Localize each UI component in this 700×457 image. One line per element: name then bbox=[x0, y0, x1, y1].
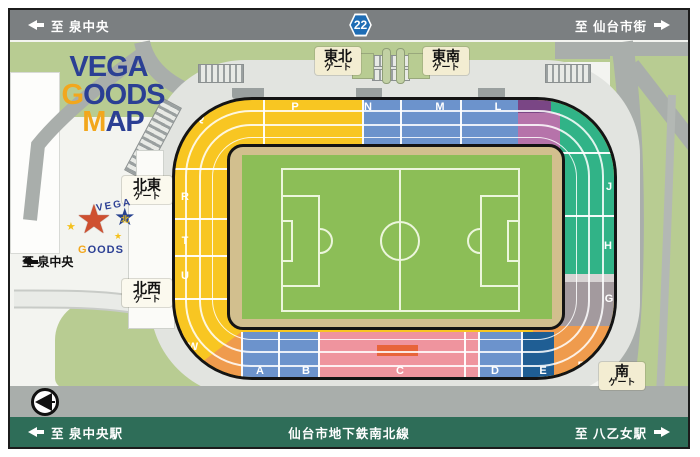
section-label-U: U bbox=[175, 270, 195, 282]
subway-line-name: 仙台市地下鉄南北線 bbox=[288, 423, 410, 442]
goal-area-left bbox=[281, 220, 293, 262]
gate-suffix: ゲート bbox=[602, 378, 642, 387]
section-label-C: C bbox=[390, 365, 410, 377]
compass-line bbox=[48, 401, 55, 403]
section-divider bbox=[460, 100, 462, 146]
section-label-T: T bbox=[175, 235, 195, 247]
section-label-E: E bbox=[533, 365, 553, 377]
section-label-K: K bbox=[596, 115, 616, 127]
section-divider bbox=[562, 152, 617, 154]
section-divider bbox=[175, 255, 233, 257]
small-star-icon: ★ bbox=[114, 232, 122, 241]
section-divider bbox=[278, 332, 280, 380]
title-ap: AP bbox=[105, 106, 143, 138]
top-road-bar: 至 泉中央 22 至 仙台市街 bbox=[10, 10, 688, 40]
page-title: VEGAGOODS MAP bbox=[18, 54, 208, 137]
section-label-M: M bbox=[430, 101, 450, 113]
section-divider bbox=[562, 215, 617, 217]
top-bar-left-text: 至 泉中央 bbox=[51, 16, 109, 35]
section-label-F: F bbox=[571, 360, 591, 372]
gate-label-hokusei: 北西 ゲート bbox=[122, 279, 172, 307]
title-m: M bbox=[82, 106, 105, 138]
title-g: G bbox=[62, 79, 84, 111]
left-arrow-icon bbox=[22, 256, 39, 267]
section-divider bbox=[400, 100, 402, 146]
route-number: 22 bbox=[349, 15, 372, 35]
right-arrow-icon bbox=[653, 427, 670, 438]
bottom-bar-right: 至 八乙女駅 bbox=[575, 417, 670, 447]
small-star-icon: ★ bbox=[66, 222, 76, 233]
bridge-pillar-right bbox=[396, 48, 405, 84]
compass-icon bbox=[31, 388, 59, 416]
section-divider bbox=[521, 332, 523, 380]
left-arrow-icon bbox=[28, 20, 45, 31]
top-bar-right-text: 至 仙台市街 bbox=[575, 16, 647, 35]
gate-suffix: ゲート bbox=[426, 63, 466, 72]
bottom-subway-bar: 至 泉中央駅 仙台市地下鉄南北線 至 八乙女駅 bbox=[10, 417, 688, 447]
section-label-J: J bbox=[599, 181, 617, 193]
section-divider bbox=[478, 332, 480, 380]
section-label-B: B bbox=[296, 365, 316, 377]
goal-area-right bbox=[507, 220, 520, 262]
mascot-star-character: ★ bbox=[76, 200, 112, 240]
stand-purple-corner bbox=[518, 100, 551, 113]
section-divider bbox=[318, 332, 320, 380]
section-divider bbox=[175, 218, 233, 220]
gate-label-tohoku: 東北 ゲート bbox=[315, 47, 361, 75]
map-frame: P N M L K J H G F E D C B A W U T R Q VE… bbox=[8, 8, 690, 449]
goods-oods: OODS bbox=[88, 244, 124, 256]
north-star-text: 北 bbox=[121, 214, 129, 225]
section-divider bbox=[175, 168, 233, 170]
bridge-pillar-left bbox=[382, 48, 391, 84]
stairs-top-right bbox=[545, 64, 591, 83]
top-bar-right: 至 仙台市街 bbox=[575, 10, 670, 40]
section-divider bbox=[241, 332, 243, 380]
mascot-goods-text: GOODS bbox=[78, 244, 124, 256]
title-line-1: VEGAGOODS bbox=[18, 54, 208, 109]
street-label: 至 泉中央 bbox=[22, 253, 73, 270]
right-arrow-icon bbox=[653, 20, 670, 31]
title-line-2: MAP bbox=[18, 109, 208, 137]
road-bottom bbox=[10, 386, 688, 417]
section-label-H: H bbox=[598, 240, 617, 252]
gate-suffix: ゲート bbox=[125, 295, 169, 304]
bottom-bar-right-text: 至 八乙女駅 bbox=[575, 423, 647, 442]
gate-label-tonan: 東南 ゲート bbox=[423, 47, 469, 75]
section-label-R: R bbox=[175, 191, 195, 203]
section-label-D: D bbox=[485, 365, 505, 377]
gate-label-minami: 南 ゲート bbox=[599, 362, 645, 390]
pitch bbox=[227, 144, 565, 330]
stadium-map-page: P N M L K J H G F E D C B A W U T R Q VE… bbox=[0, 0, 700, 457]
gate-suffix: ゲート bbox=[318, 63, 358, 72]
center-circle bbox=[380, 221, 420, 261]
section-divider bbox=[263, 100, 265, 146]
section-label-A: A bbox=[250, 365, 270, 377]
section-label-L: L bbox=[488, 101, 508, 113]
goods-g: G bbox=[78, 244, 88, 256]
section-label-N: N bbox=[358, 101, 378, 113]
section-label-G: G bbox=[599, 293, 617, 305]
section-label-P: P bbox=[285, 101, 305, 113]
section-label-W: W bbox=[183, 341, 203, 353]
section-divider bbox=[464, 332, 466, 380]
bench-red-block bbox=[377, 345, 418, 356]
section-divider bbox=[175, 298, 233, 300]
top-bar-left: 至 泉中央 bbox=[28, 10, 109, 40]
route-22-badge: 22 bbox=[347, 13, 374, 37]
